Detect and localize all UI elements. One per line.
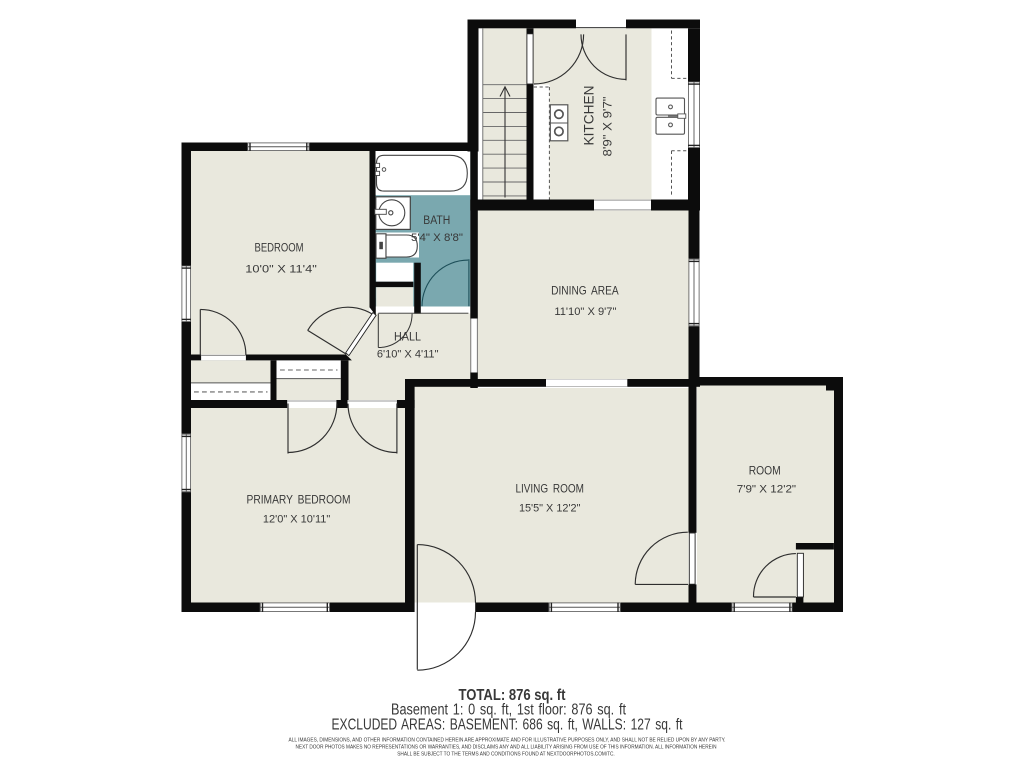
svg-text:6'10" X 4'11": 6'10" X 4'11" — [377, 348, 439, 360]
svg-text:7'9" X 12'2": 7'9" X 12'2" — [737, 484, 796, 496]
svg-text:BATH: BATH — [423, 213, 450, 227]
svg-text:8'9" X 9'7": 8'9" X 9'7" — [601, 97, 615, 157]
svg-text:15'5" X 12'2": 15'5" X 12'2" — [519, 503, 581, 515]
svg-text:12'0" X 10'11": 12'0" X 10'11" — [263, 514, 330, 526]
svg-text:EXCLUDED AREAS: BASEMENT: 686: EXCLUDED AREAS: BASEMENT: 686 sq. ft, WA… — [332, 717, 684, 734]
svg-text:HALL: HALL — [394, 330, 421, 344]
svg-text:ALL IMAGES, DIMENSIONS, AND OT: ALL IMAGES, DIMENSIONS, AND OTHER INFORM… — [289, 737, 726, 743]
svg-text:10'0" X 11'4": 10'0" X 11'4" — [245, 264, 317, 276]
svg-text:5'4" X 8'8": 5'4" X 8'8" — [411, 232, 463, 244]
svg-text:DINING AREA: DINING AREA — [551, 284, 619, 298]
svg-text:BEDROOM: BEDROOM — [255, 240, 304, 254]
svg-text:KITCHEN: KITCHEN — [581, 86, 597, 146]
svg-text:NEXT DOOR PHOTOS MAKES NO REPR: NEXT DOOR PHOTOS MAKES NO REPRESENTATION… — [296, 744, 717, 750]
svg-text:PRIMARY BEDROOM: PRIMARY BEDROOM — [247, 493, 351, 507]
svg-text:ROOM: ROOM — [749, 464, 781, 478]
svg-text:SHALL BE SUBJECT TO THE TERMS: SHALL BE SUBJECT TO THE TERMS AND CONDIT… — [397, 751, 615, 757]
svg-text:11'10" X 9'7": 11'10" X 9'7" — [554, 306, 616, 318]
svg-text:LIVING ROOM: LIVING ROOM — [515, 482, 584, 496]
